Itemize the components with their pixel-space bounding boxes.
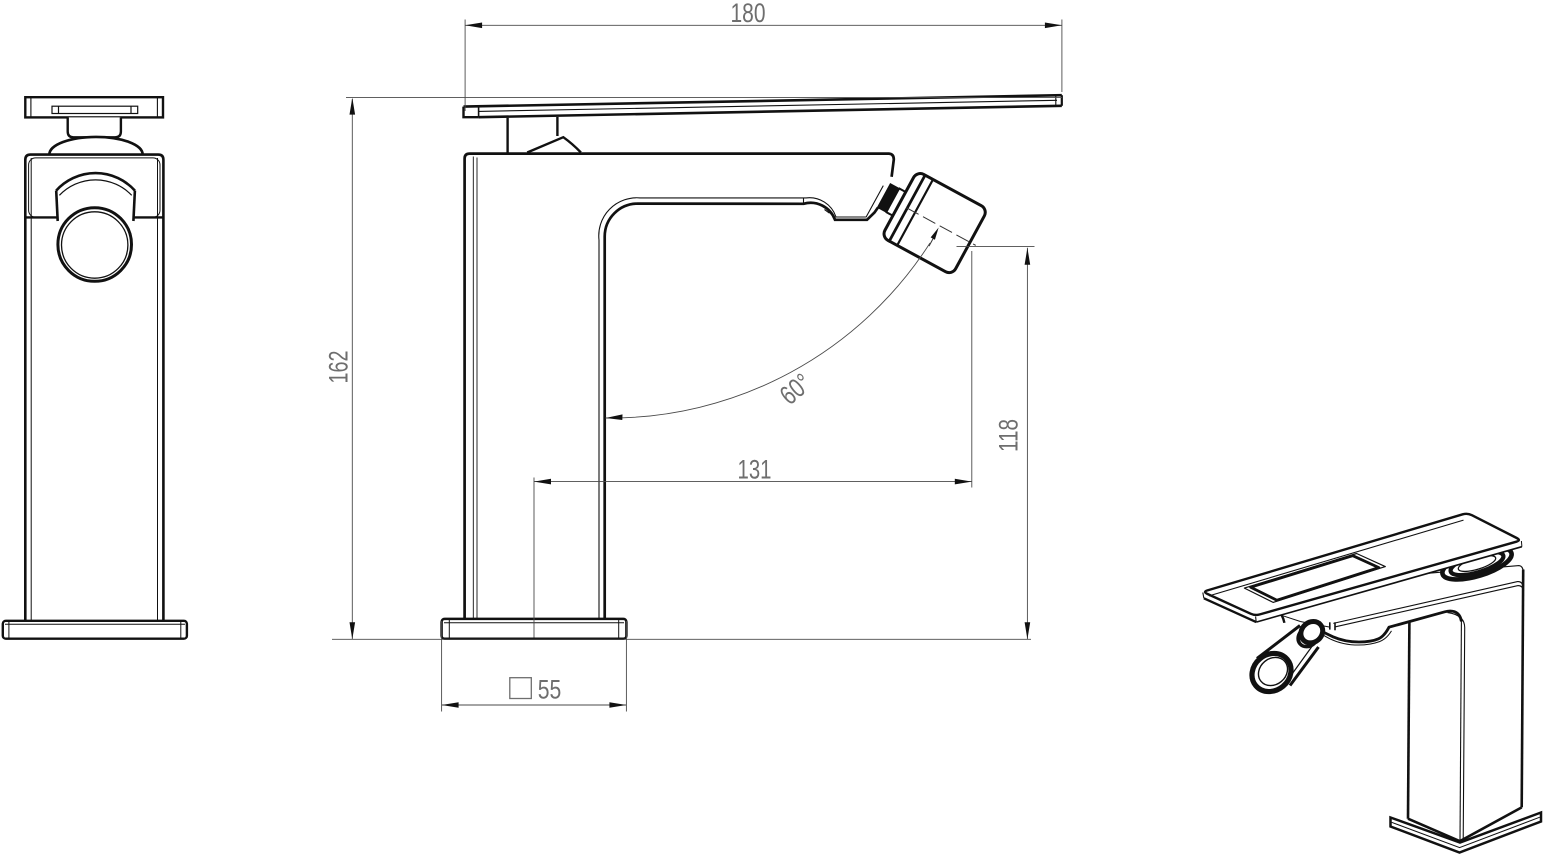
svg-text:131: 131 bbox=[738, 454, 772, 484]
svg-text:118: 118 bbox=[994, 419, 1024, 452]
svg-text:162: 162 bbox=[324, 351, 354, 384]
svg-text:180: 180 bbox=[731, 0, 766, 28]
svg-text:55: 55 bbox=[538, 674, 562, 704]
